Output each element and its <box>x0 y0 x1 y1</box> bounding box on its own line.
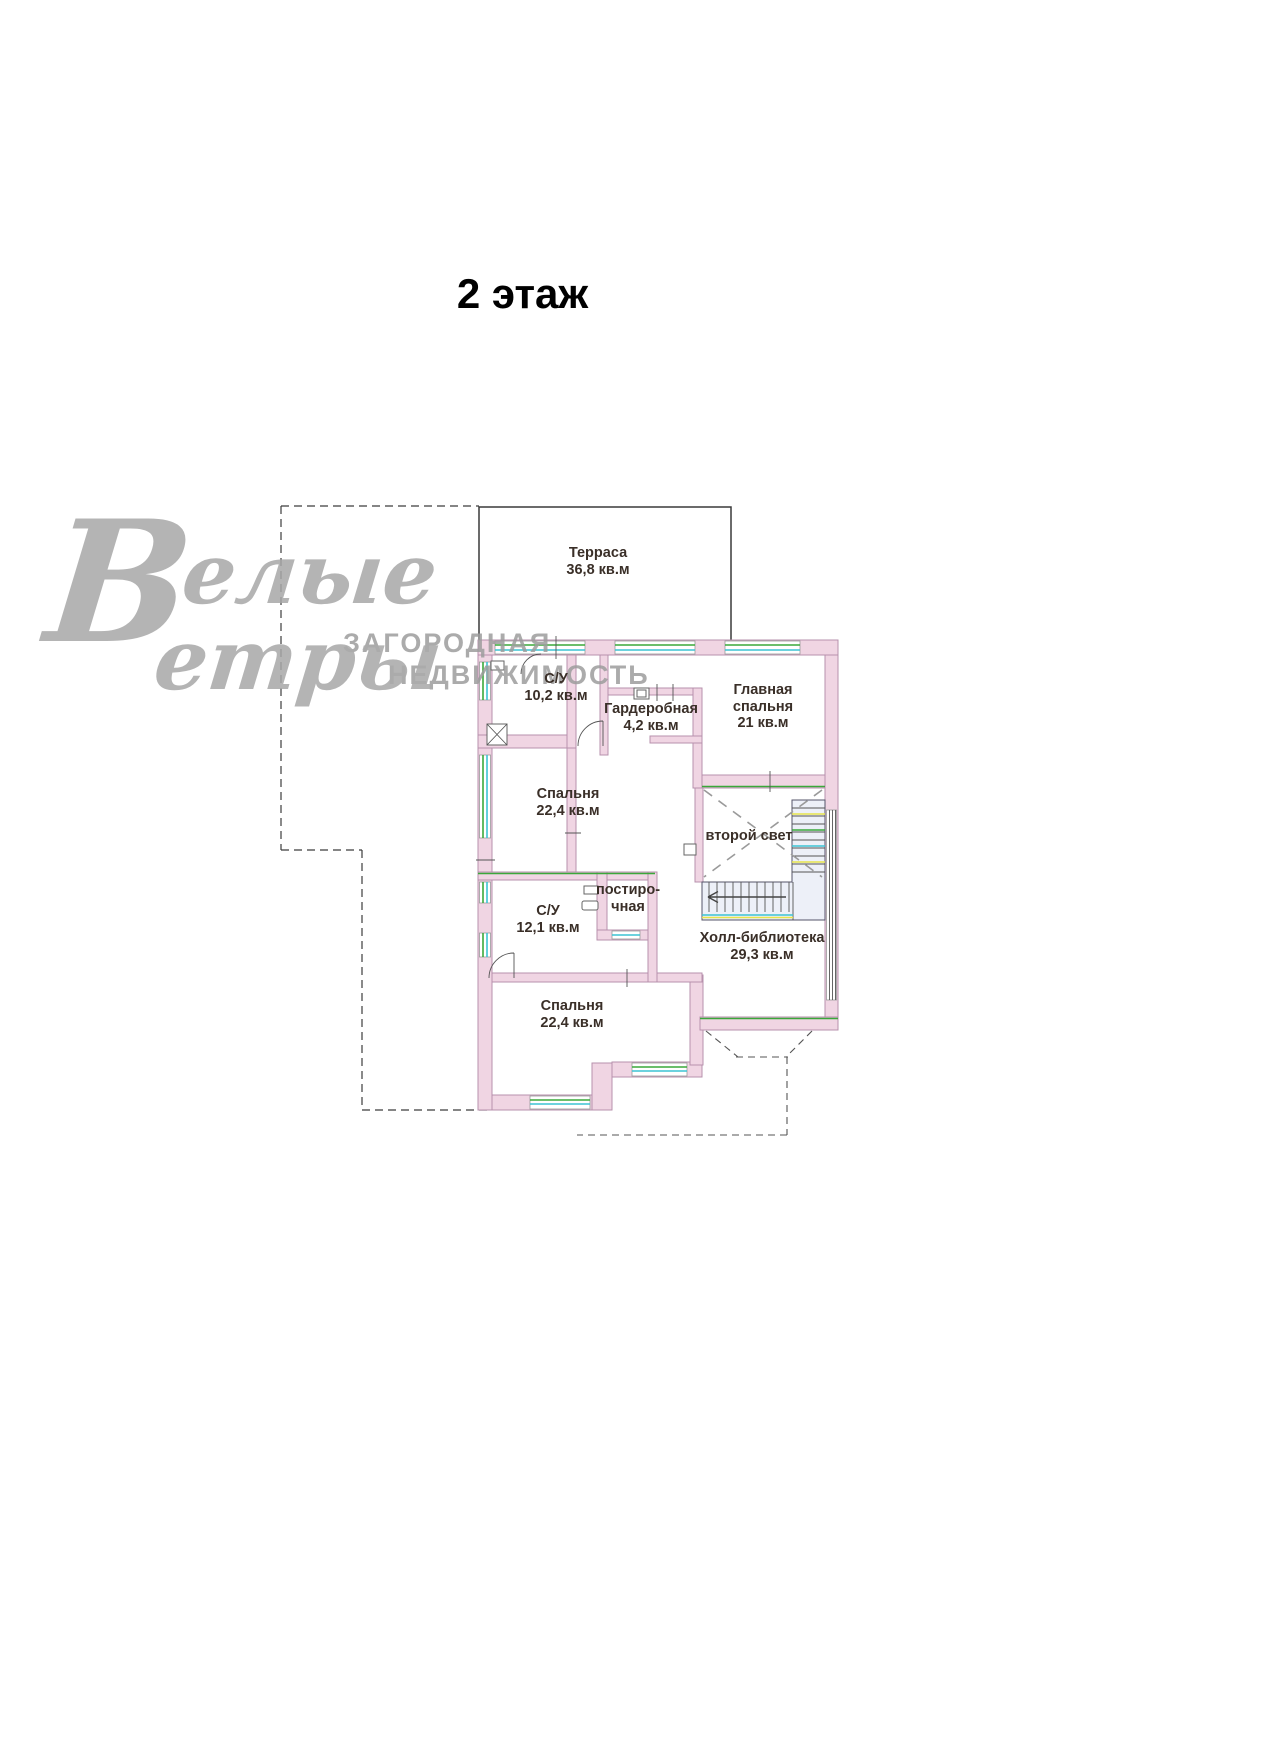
room-label-bathroom-2: С/У 12,1 кв.м <box>516 903 579 936</box>
room-name: Главная <box>733 682 793 699</box>
room-area: 29,3 кв.м <box>700 947 825 964</box>
room-label-laundry: постиро- чная <box>596 882 660 915</box>
room-area: 22,4 кв.м <box>536 803 599 820</box>
room-label-bedroom-upper: Спальня 22,4 кв.м <box>536 786 599 819</box>
room-label-terrace: Терраса 36,8 кв.м <box>566 545 629 578</box>
room-area: 36,8 кв.м <box>566 562 629 579</box>
room-area: 4,2 кв.м <box>604 718 698 735</box>
room-label-wardrobe: Гардеробная 4,2 кв.м <box>604 701 698 734</box>
room-name: постиро- <box>596 882 660 899</box>
room-name: Холл-библиотека <box>700 930 825 947</box>
room-label-bedroom-lower: Спальня 22,4 кв.м <box>540 998 603 1031</box>
room-name: С/У <box>524 671 587 688</box>
room-name-2: спальня <box>733 699 793 716</box>
room-name: Спальня <box>536 786 599 803</box>
room-label-bathroom-1: С/У 10,2 кв.м <box>524 671 587 704</box>
room-label-second-light: второй свет <box>706 828 793 845</box>
room-name-2: чная <box>596 899 660 916</box>
room-label-master-bedroom: Главная спальня 21 кв.м <box>733 682 793 732</box>
room-name: Терраса <box>566 545 629 562</box>
room-name: второй свет <box>706 828 793 845</box>
room-name: Гардеробная <box>604 701 698 718</box>
room-area: 22,4 кв.м <box>540 1015 603 1032</box>
room-area: 10,2 кв.м <box>524 688 587 705</box>
property-dashed-line <box>281 506 492 1110</box>
room-area: 21 кв.м <box>733 715 793 732</box>
floor-plan-drawing <box>0 0 1275 1754</box>
room-label-hall-library: Холл-библиотека 29,3 кв.м <box>700 930 825 963</box>
scanned-floor-plan-page: 2 этаж В елые етры ЗАГОРОДНАЯ НЕДВИЖИМОС… <box>0 0 1275 1754</box>
room-name: Спальня <box>540 998 603 1015</box>
room-name: С/У <box>516 903 579 920</box>
staircase <box>702 800 825 920</box>
room-area: 12,1 кв.м <box>516 920 579 937</box>
